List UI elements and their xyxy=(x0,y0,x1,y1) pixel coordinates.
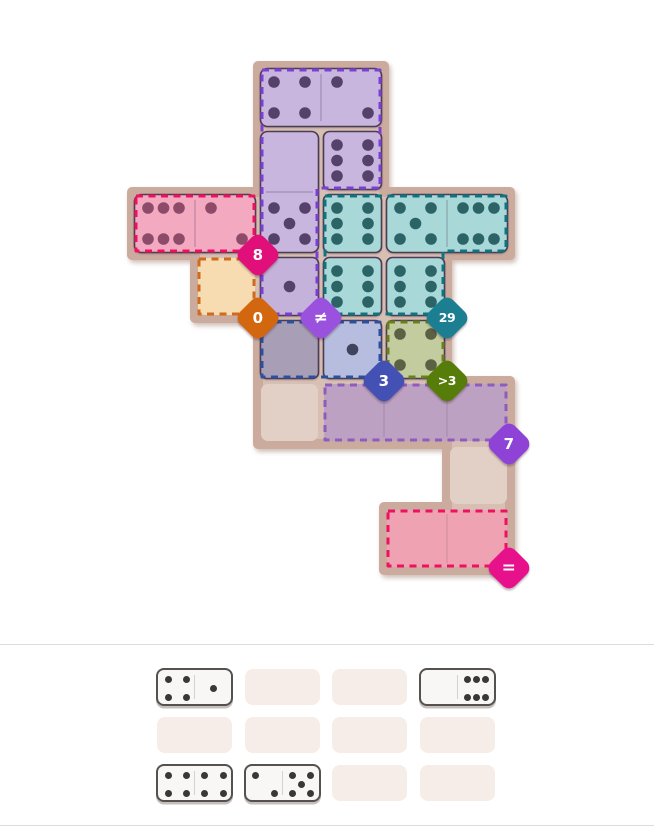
tray-slot-r1-c0 xyxy=(157,717,232,753)
pip xyxy=(268,233,280,245)
pip xyxy=(236,233,248,245)
pip xyxy=(347,344,359,356)
pip xyxy=(362,155,374,167)
pip xyxy=(488,202,500,214)
pip xyxy=(394,233,406,245)
pip xyxy=(158,233,170,245)
tray-pip xyxy=(165,790,172,797)
tray-slot-r0-c1 xyxy=(245,669,320,705)
pip xyxy=(173,233,185,245)
cell-cream-empty[interactable] xyxy=(198,258,255,315)
pip xyxy=(331,233,343,245)
region-fill-mauve[interactable] xyxy=(324,384,507,441)
pip xyxy=(488,233,500,245)
page-bottom-divider xyxy=(0,825,654,826)
tray-pip xyxy=(482,694,489,701)
tray-pip xyxy=(201,790,208,797)
pip xyxy=(473,202,485,214)
puzzle-board xyxy=(0,0,654,650)
pip xyxy=(425,359,437,371)
tray-pip xyxy=(289,790,296,797)
pip xyxy=(268,107,280,119)
pip xyxy=(394,281,406,293)
tray-pip xyxy=(307,790,314,797)
tray-pip xyxy=(464,694,471,701)
pip xyxy=(457,202,469,214)
tray-domino-0-6[interactable] xyxy=(419,668,496,706)
tray-domino-4-1[interactable] xyxy=(156,668,233,706)
tray-pip xyxy=(165,676,172,683)
game-root: 80≠293>37= xyxy=(0,0,654,827)
domino-1-0-half xyxy=(261,321,319,379)
pip xyxy=(425,328,437,340)
tray-pip xyxy=(473,694,480,701)
pip xyxy=(394,202,406,214)
tray-slot-r0-c2 xyxy=(332,669,407,705)
pip xyxy=(425,265,437,277)
tray-slot-r1-c3 xyxy=(420,717,495,753)
domino-6-2[interactable] xyxy=(135,195,256,253)
pip xyxy=(331,202,343,214)
pip xyxy=(331,296,343,308)
tray-pip xyxy=(473,676,480,683)
tray-pip xyxy=(183,772,190,779)
pip xyxy=(410,218,422,230)
pip xyxy=(331,139,343,151)
tray-pip xyxy=(220,790,227,797)
pip xyxy=(362,233,374,245)
pip xyxy=(331,265,343,277)
tray-pip xyxy=(201,772,208,779)
domino-5-6[interactable] xyxy=(387,195,508,253)
pip xyxy=(362,281,374,293)
tray-pip xyxy=(271,790,278,797)
tray-pip xyxy=(464,676,471,683)
pip xyxy=(331,155,343,167)
pip xyxy=(331,218,343,230)
tray-domino-divider xyxy=(282,771,283,795)
pip xyxy=(394,296,406,308)
tray-pip xyxy=(183,676,190,683)
pip xyxy=(268,76,280,88)
pip xyxy=(331,170,343,182)
pip xyxy=(362,265,374,277)
tray-domino-2-5[interactable] xyxy=(244,764,321,802)
pip xyxy=(205,202,217,214)
pip xyxy=(394,359,406,371)
pip xyxy=(142,202,154,214)
tray-domino-divider xyxy=(194,771,195,795)
pip xyxy=(158,202,170,214)
domino-0-5[interactable] xyxy=(261,132,319,253)
pip xyxy=(425,281,437,293)
pip xyxy=(173,202,185,214)
pip xyxy=(299,233,311,245)
tray-domino-4-4[interactable] xyxy=(156,764,233,802)
pip xyxy=(425,233,437,245)
pip xyxy=(394,265,406,277)
tray-pip xyxy=(183,790,190,797)
pip xyxy=(362,107,374,119)
pip xyxy=(331,76,343,88)
pip xyxy=(425,296,437,308)
pip xyxy=(394,328,406,340)
tray-pip xyxy=(307,772,314,779)
tray-slot-r2-c2 xyxy=(332,765,407,801)
tray-slot-r1-c1 xyxy=(245,717,320,753)
domino-4-2[interactable] xyxy=(261,69,382,127)
tray-pip xyxy=(482,676,489,683)
pip xyxy=(284,218,296,230)
pip xyxy=(299,107,311,119)
tray-pip xyxy=(298,781,305,788)
pip xyxy=(142,233,154,245)
domino-6-4-half xyxy=(387,321,445,379)
tray-domino-divider xyxy=(457,675,458,699)
pip xyxy=(362,139,374,151)
tray-domino-divider xyxy=(194,675,195,699)
tray-pip xyxy=(183,694,190,701)
pip xyxy=(425,202,437,214)
pip xyxy=(331,281,343,293)
pip xyxy=(362,202,374,214)
tray-pip xyxy=(165,694,172,701)
tray-pip xyxy=(252,772,259,779)
tray-pip xyxy=(210,685,217,692)
pip xyxy=(362,170,374,182)
tray-slot-r1-c2 xyxy=(332,717,407,753)
cell-plain-empty-1[interactable] xyxy=(261,384,318,441)
pip xyxy=(299,76,311,88)
pip xyxy=(284,281,296,293)
tray-pip xyxy=(165,772,172,779)
pip xyxy=(268,202,280,214)
cell-plain-empty-2[interactable] xyxy=(450,447,507,504)
pip xyxy=(362,218,374,230)
tray-slot-r2-c3 xyxy=(420,765,495,801)
pip xyxy=(457,233,469,245)
tray-pip xyxy=(220,772,227,779)
tray-pip xyxy=(289,772,296,779)
pip xyxy=(362,296,374,308)
pip xyxy=(299,202,311,214)
pip xyxy=(473,233,485,245)
tray-top-divider xyxy=(0,644,654,645)
